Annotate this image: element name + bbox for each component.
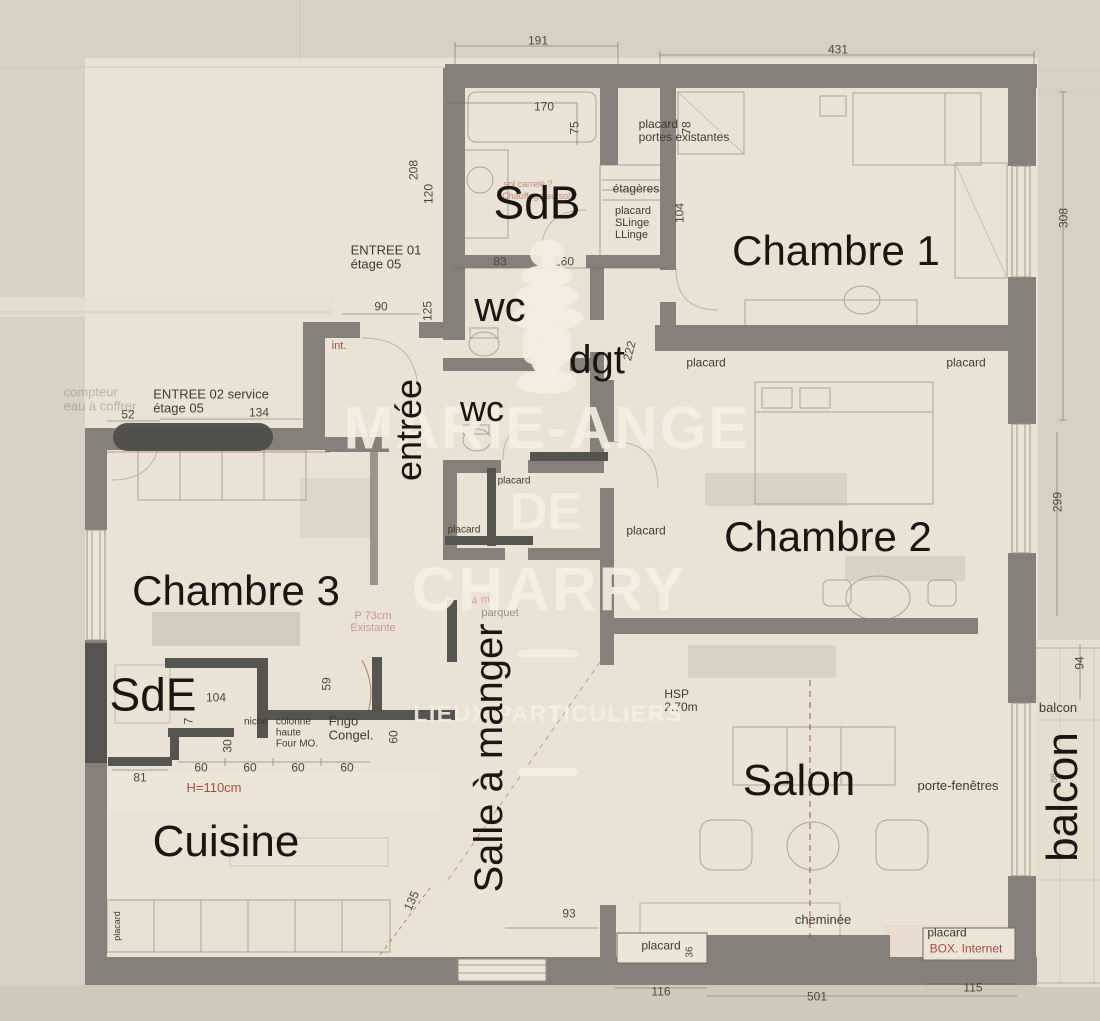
- redaction-capsule: [113, 423, 273, 451]
- floorplan-page: placard portes existantesétagèresplacard…: [0, 0, 1100, 1021]
- floorplan-drawing: [0, 0, 1100, 1021]
- paper-background: [0, 0, 1100, 1021]
